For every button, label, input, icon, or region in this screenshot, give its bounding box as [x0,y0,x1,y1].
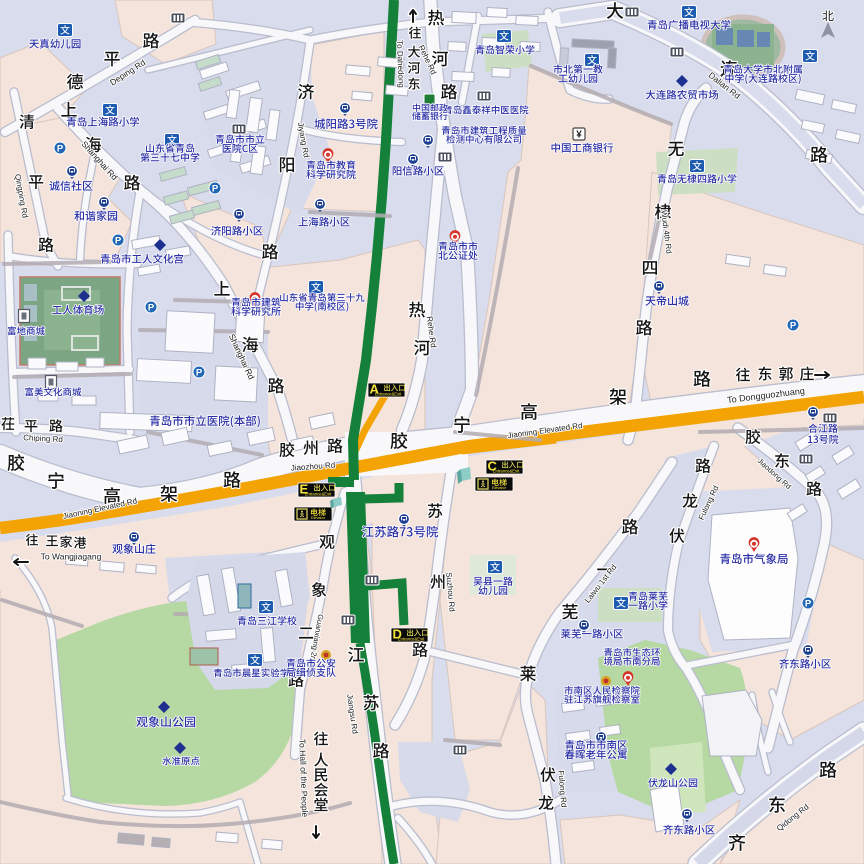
svg-text:P: P [115,235,122,246]
svg-text:Entrance&Exit: Entrance&Exit [493,469,520,474]
svg-text:Elevator: Elevator [492,486,507,490]
svg-text:P: P [57,143,64,154]
svg-text:Entrance&Exit: Entrance&Exit [375,392,402,397]
svg-text:P: P [805,598,812,609]
svg-text:¥: ¥ [576,130,582,141]
svg-text:P: P [790,320,797,331]
svg-text:To Dahedong: To Dahedong [395,40,406,88]
svg-text:Elevator: Elevator [311,516,326,520]
svg-text:P: P [148,302,155,313]
svg-text:Entrance&Exit: Entrance&Exit [305,492,332,497]
svg-text:Entrance&Exit: Entrance&Exit [398,637,425,642]
svg-text:To Wangjiagang: To Wangjiagang [41,551,102,561]
svg-text:P: P [212,183,219,194]
svg-text:P: P [196,367,203,378]
